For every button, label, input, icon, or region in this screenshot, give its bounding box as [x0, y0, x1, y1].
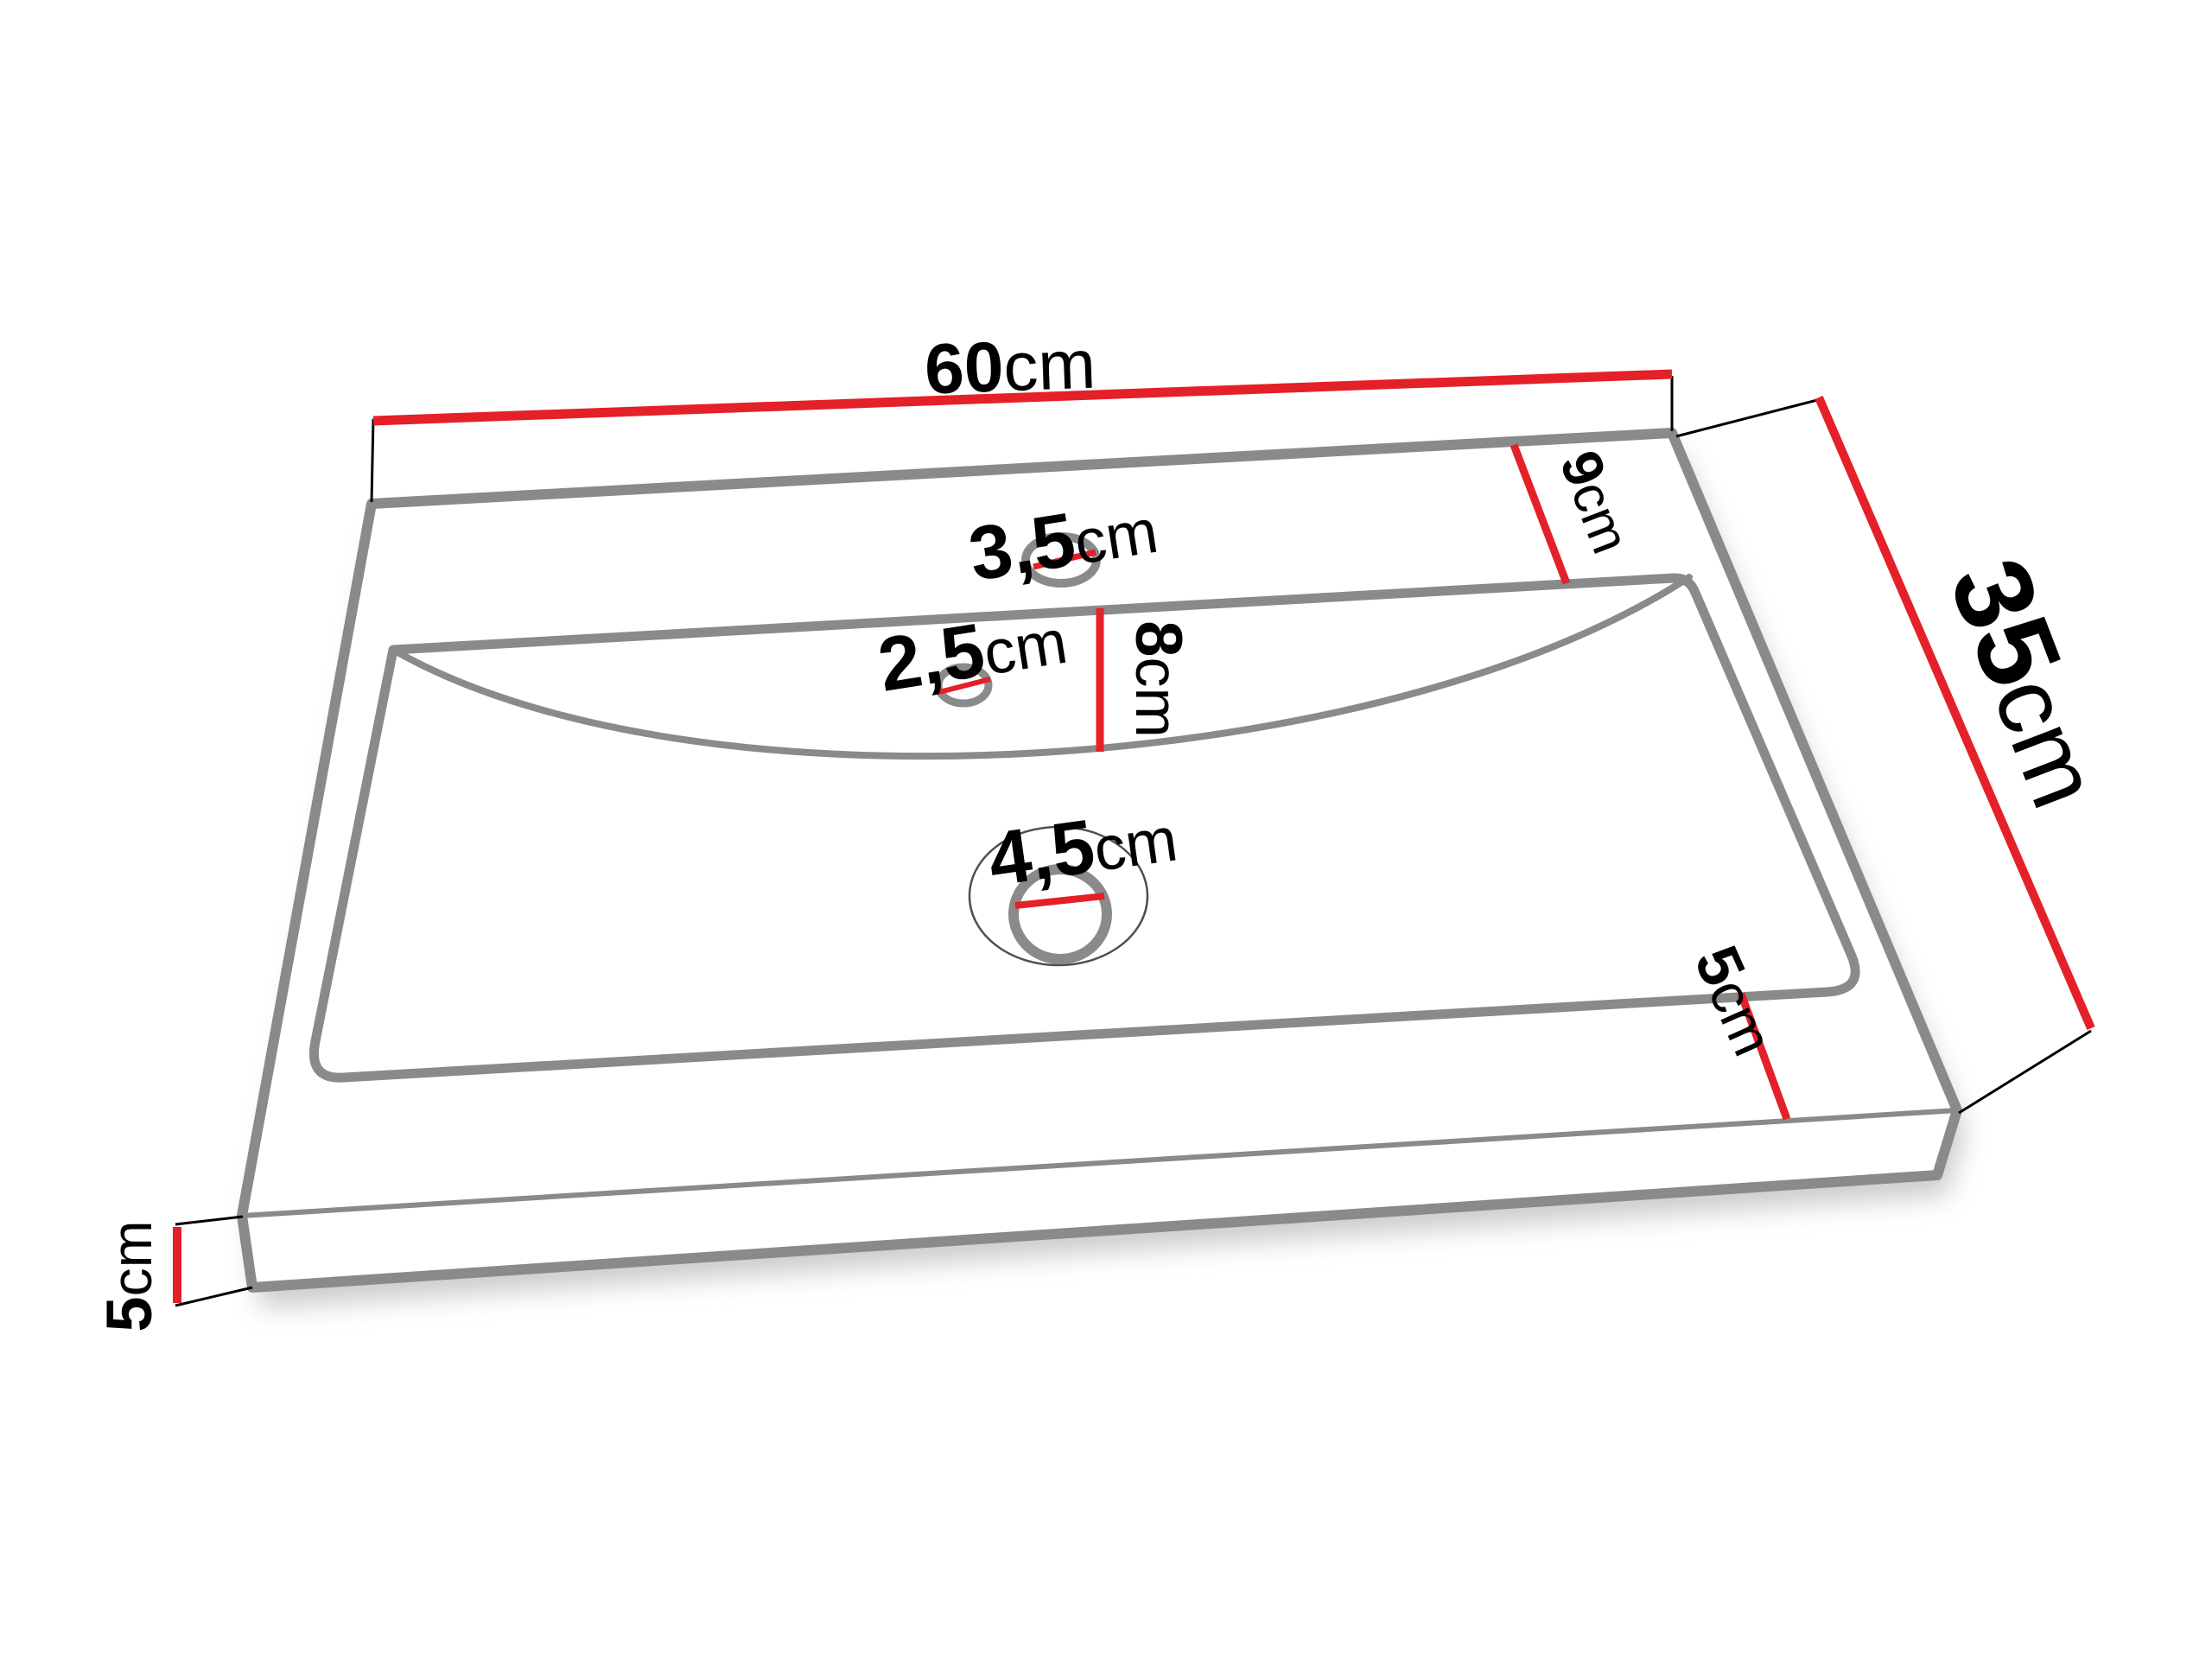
faucet-hole-value: 3,5: [963, 496, 1081, 597]
dimension-edge-height: 5cm: [93, 1217, 252, 1332]
width-value: 60: [924, 327, 1005, 409]
drain-hole-value: 4,5: [983, 803, 1100, 902]
edge-height-unit: cm: [99, 1220, 163, 1296]
drain-hole-unit: cm: [1090, 804, 1181, 885]
width-label: 60cm: [924, 325, 1097, 410]
sink-dimension-diagram: 60cm 35cm 9cm 8cm 3,5cm 2,5cm 4,5cm 5cm: [0, 0, 2212, 1659]
diagram-canvas: 60cm 35cm 9cm 8cm 3,5cm 2,5cm 4,5cm 5cm: [0, 0, 2212, 1659]
basin-depth-label: 8cm: [1122, 620, 1195, 738]
edge-height-label: 5cm: [93, 1220, 165, 1332]
basin-depth-unit: cm: [1123, 657, 1191, 737]
edge-height-value: 5: [93, 1296, 165, 1332]
width-extension-left: [372, 419, 373, 502]
overflow-hole-value: 2,5: [873, 607, 990, 708]
basin-depth-value: 8: [1122, 620, 1195, 657]
edge-height-extension-top: [175, 1217, 243, 1224]
overflow-hole-unit: cm: [979, 607, 1071, 689]
edge-height-extension-bottom: [175, 1287, 252, 1306]
depth-extension-top: [1676, 399, 1821, 436]
faucet-hole-unit: cm: [1070, 497, 1162, 578]
width-unit: cm: [1002, 326, 1097, 406]
depth-extension-bottom: [1959, 1031, 2091, 1113]
depth-label: 35cm: [1926, 543, 2132, 823]
